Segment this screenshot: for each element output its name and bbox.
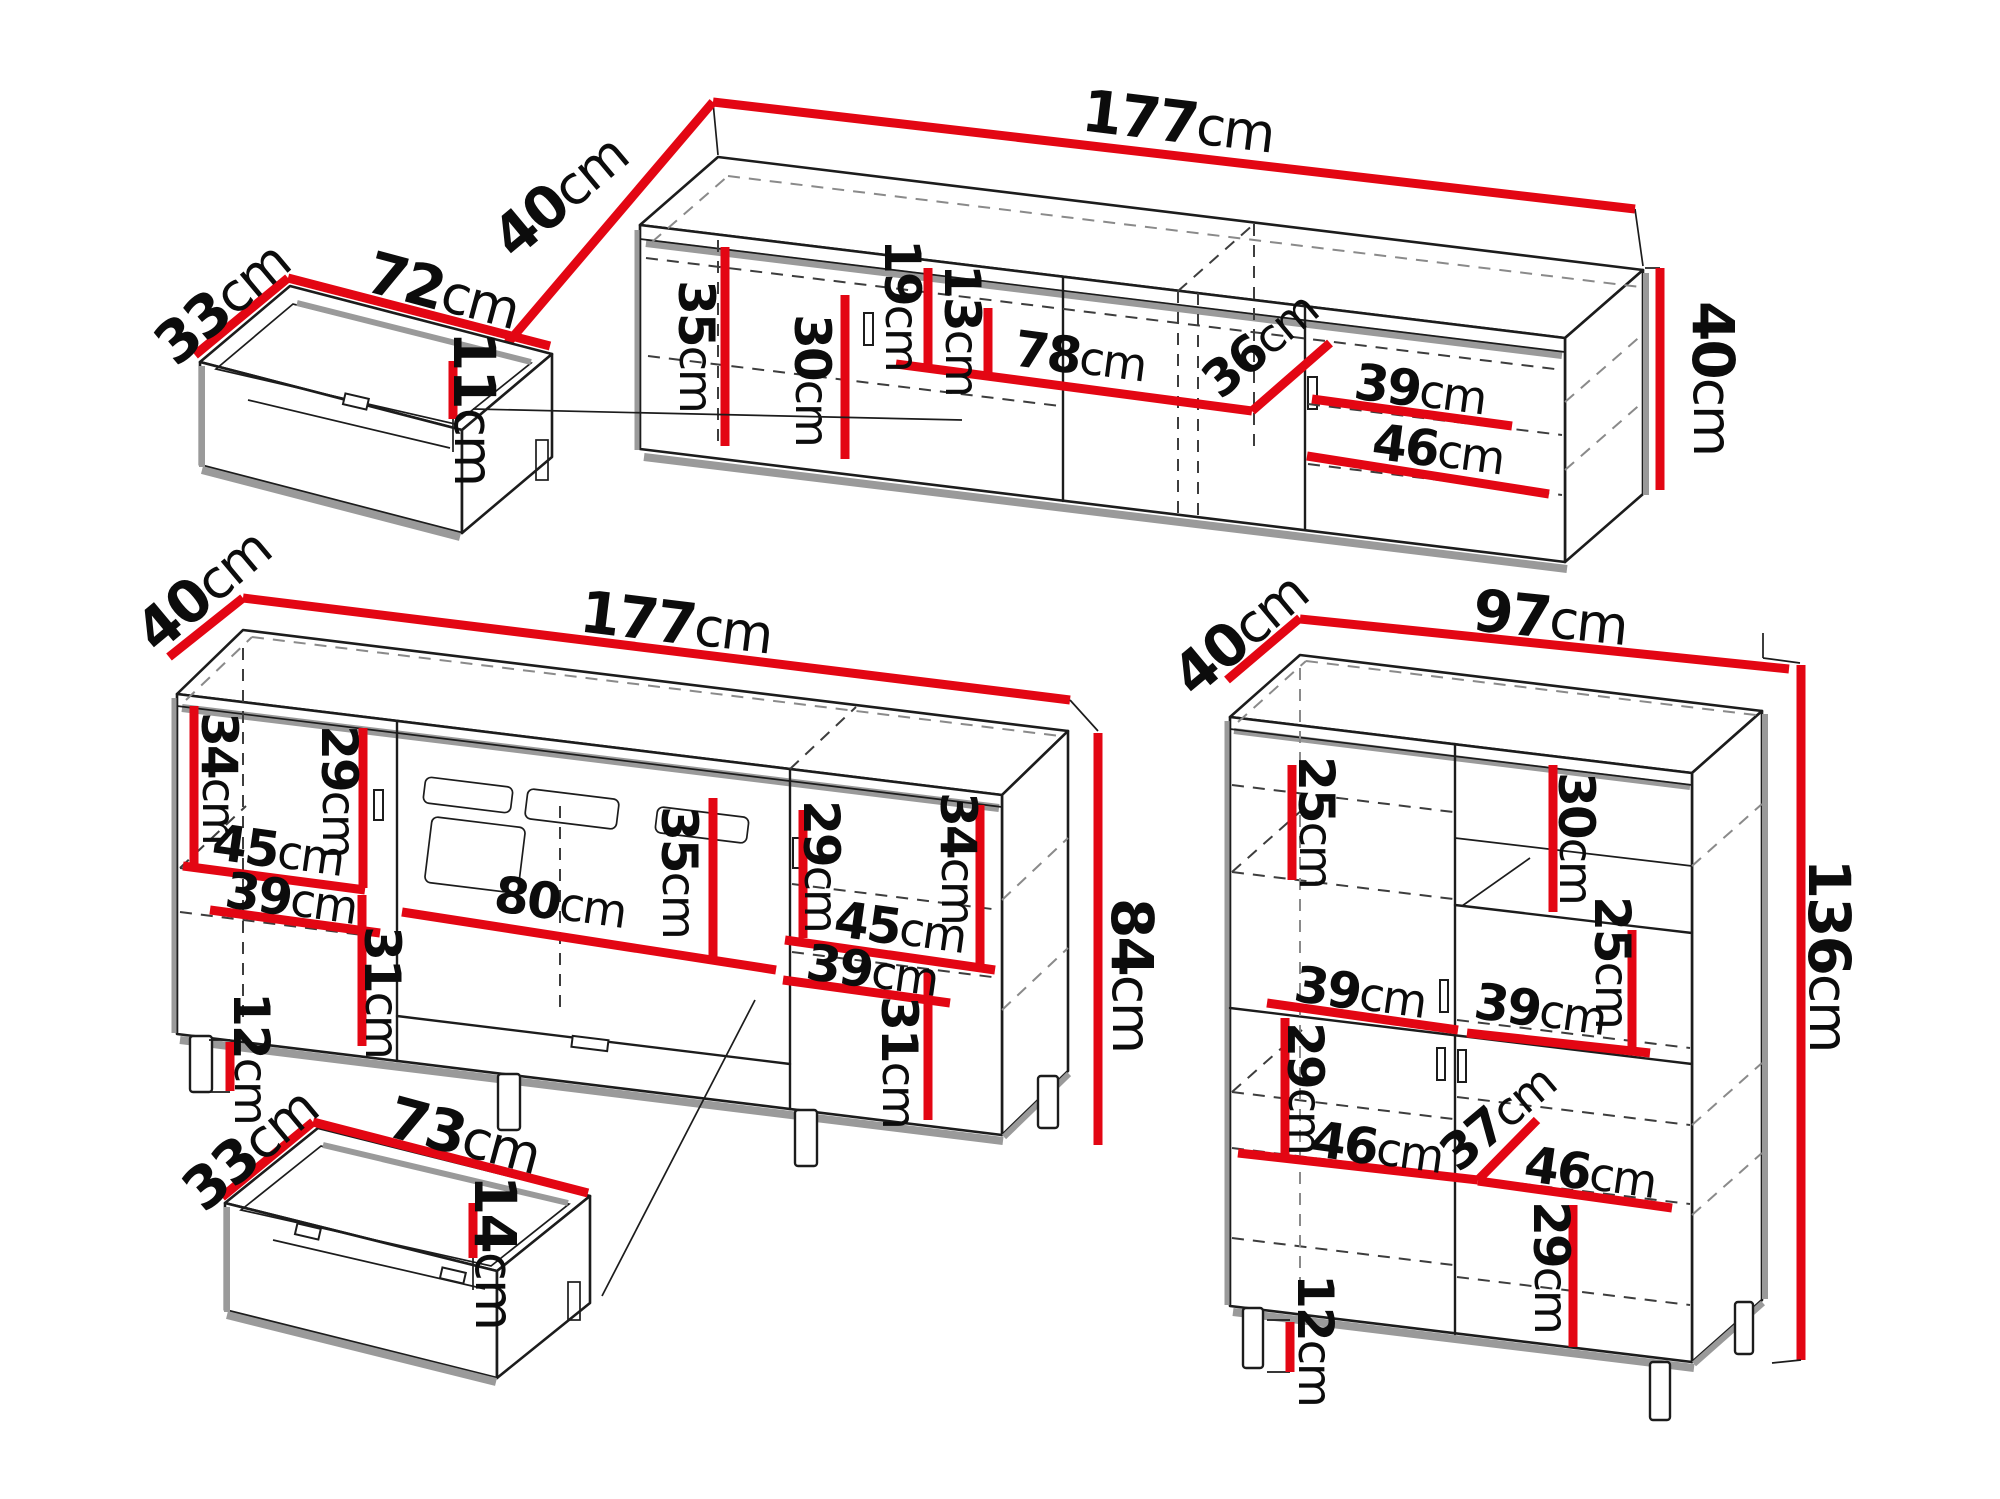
- label-tv-13: 13cm: [933, 264, 991, 396]
- dim-unit: cm: [1536, 983, 1609, 1046]
- label-sideboard-35: 35cm: [650, 806, 708, 938]
- dim-value: 25: [1583, 896, 1641, 962]
- sideboard-right-face: [1002, 731, 1068, 1135]
- label-drawer1-height: 11cm: [440, 331, 508, 485]
- dim-value: 40: [1679, 301, 1747, 378]
- label-tv-19: 19cm: [873, 239, 931, 371]
- dim-value: 177: [1078, 77, 1201, 159]
- label-sideboard-31r: 31cm: [870, 996, 928, 1128]
- dim-value: 30: [783, 314, 841, 380]
- dim-value: 12: [1286, 1274, 1344, 1340]
- dim-unit: cm: [1798, 974, 1861, 1051]
- cabinet-handle: [1458, 1050, 1466, 1082]
- dim-unit: cm: [652, 872, 706, 938]
- dim-value: 13: [933, 264, 991, 330]
- dim-value: 11: [440, 331, 508, 408]
- cabinet-handle: [1440, 980, 1448, 1012]
- label-drawer2-height: 14cm: [461, 1175, 529, 1329]
- dim-value: 46: [1521, 1135, 1594, 1202]
- dim-value: 35: [667, 280, 725, 346]
- dim-value: 84: [1098, 898, 1166, 975]
- label-cabinet-29b: 29cm: [1522, 1201, 1580, 1333]
- dim-value: 29: [310, 725, 368, 791]
- label-cabinet-leg-12: 12cm: [1286, 1274, 1344, 1406]
- label-sideboard-31: 31cm: [353, 926, 411, 1058]
- furniture-dimension-sheet: 40cm 177cm 40cm 35cm 30cm 19cm 13cm 78cm…: [0, 0, 2000, 1499]
- cabinet-right-face: [1692, 711, 1762, 1362]
- dim-unit: cm: [1288, 1340, 1342, 1406]
- label-cabinet-30: 30cm: [1547, 772, 1605, 904]
- dim-unit: cm: [1546, 587, 1629, 658]
- label-sideboard-34r: 34cm: [929, 792, 987, 924]
- dim-value: 29: [792, 800, 850, 866]
- tv-door-handle-left: [864, 313, 873, 345]
- dim-value: 39: [222, 861, 295, 928]
- dim-value: 46: [1308, 1110, 1381, 1177]
- dim-unit: cm: [1586, 1146, 1659, 1209]
- dim-value: 78: [1011, 320, 1084, 386]
- label-tv-35: 35cm: [667, 280, 725, 412]
- dim-unit: cm: [1434, 423, 1507, 485]
- dim-value: 39: [803, 933, 876, 1000]
- cabinet-handle: [1437, 1048, 1445, 1080]
- dim-unit: cm: [1524, 1267, 1578, 1333]
- dim-value: 34: [190, 712, 248, 778]
- dim-unit: cm: [1356, 966, 1429, 1029]
- furniture-dimensions-diagram: 40cm 177cm 40cm 35cm 30cm 19cm 13cm 78cm…: [0, 0, 2000, 1499]
- dim-value: 14: [461, 1175, 529, 1252]
- dim-unit: cm: [287, 872, 360, 935]
- dim-value: 39: [1351, 353, 1424, 419]
- label-tv-30: 30cm: [783, 314, 841, 446]
- dim-unit: cm: [785, 380, 839, 446]
- dim-unit: cm: [443, 408, 506, 485]
- dim-value: 136: [1795, 859, 1863, 974]
- label-cabinet-25: 25cm: [1287, 756, 1345, 888]
- dim-unit: cm: [1416, 363, 1489, 425]
- dim-value: 31: [870, 996, 928, 1062]
- dim-unit: cm: [875, 305, 929, 371]
- label-cabinet-height: 136cm: [1795, 859, 1863, 1051]
- label-tv-height: 40cm: [1679, 301, 1747, 455]
- dim-value: 46: [1369, 413, 1442, 479]
- dim-unit: cm: [872, 1062, 926, 1128]
- dim-unit: cm: [1682, 378, 1745, 455]
- dim-value: 31: [353, 926, 411, 992]
- dim-value: 12: [222, 992, 280, 1058]
- dim-unit: cm: [691, 594, 775, 666]
- dim-unit: cm: [464, 1252, 527, 1329]
- dim-value: 34: [929, 792, 987, 858]
- dim-unit: cm: [1289, 822, 1343, 888]
- dim-value: 39: [1471, 972, 1544, 1039]
- dim-unit: cm: [1549, 838, 1603, 904]
- dim-unit: cm: [1193, 93, 1277, 165]
- dim-unit: cm: [935, 330, 989, 396]
- dim-unit: cm: [1101, 975, 1164, 1052]
- dim-unit: cm: [556, 876, 629, 939]
- dim-value: 97: [1470, 576, 1553, 652]
- dim-value: 19: [873, 239, 931, 305]
- dim-unit: cm: [669, 346, 723, 412]
- dim-value: 35: [650, 806, 708, 872]
- dim-unit: cm: [355, 992, 409, 1058]
- dim-value: 80: [491, 865, 564, 932]
- dim-value: 30: [1547, 772, 1605, 838]
- sideboard-handle-left-door: [374, 790, 383, 820]
- dim-value: 29: [1522, 1201, 1580, 1267]
- dim-value: 39: [1291, 955, 1364, 1022]
- dim-value: 177: [576, 578, 699, 660]
- label-sideboard-height: 84cm: [1098, 898, 1166, 1052]
- dim-unit: cm: [1076, 330, 1149, 392]
- dim-unit: cm: [1373, 1121, 1446, 1184]
- dim-value: 29: [1276, 1022, 1334, 1088]
- dim-value: 25: [1287, 756, 1345, 822]
